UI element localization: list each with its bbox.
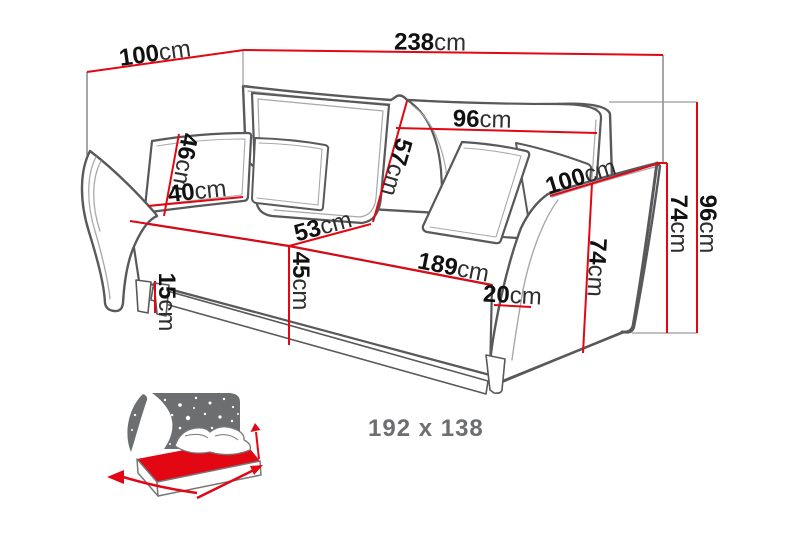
label-armrest-width: 20cm xyxy=(482,280,542,310)
label-total-width: 238cm xyxy=(394,29,466,57)
width-arrow-head xyxy=(107,470,124,484)
label-total-height: 96cm xyxy=(694,195,721,254)
sleeping-area-size: 192 x 138 xyxy=(368,415,484,442)
left-back-pillow xyxy=(252,138,328,210)
sofa-dimension-diagram: 100cm 238cm 46cm 40cm 57cm 96cm 53cm 45c… xyxy=(0,0,800,533)
label-top-depth: 100cm xyxy=(117,35,192,72)
label-armrest-height: 74cm xyxy=(665,195,692,254)
label-seat-height: 45cm xyxy=(287,252,314,311)
duvet xyxy=(175,427,250,455)
diagram-canvas: 100cm 238cm 46cm 40cm 57cm 96cm 53cm 45c… xyxy=(0,0,800,533)
sleeping-function-icon xyxy=(107,393,263,498)
height-arrow-head xyxy=(251,423,261,432)
label-armrest-front-height: 74cm xyxy=(581,237,611,297)
label-floor-clearance: 15cm xyxy=(153,273,180,332)
label-backrest-width: 96cm xyxy=(453,105,512,134)
front-right-foot xyxy=(486,355,505,393)
front-left-leg xyxy=(136,280,151,313)
height-arrow xyxy=(256,432,259,459)
